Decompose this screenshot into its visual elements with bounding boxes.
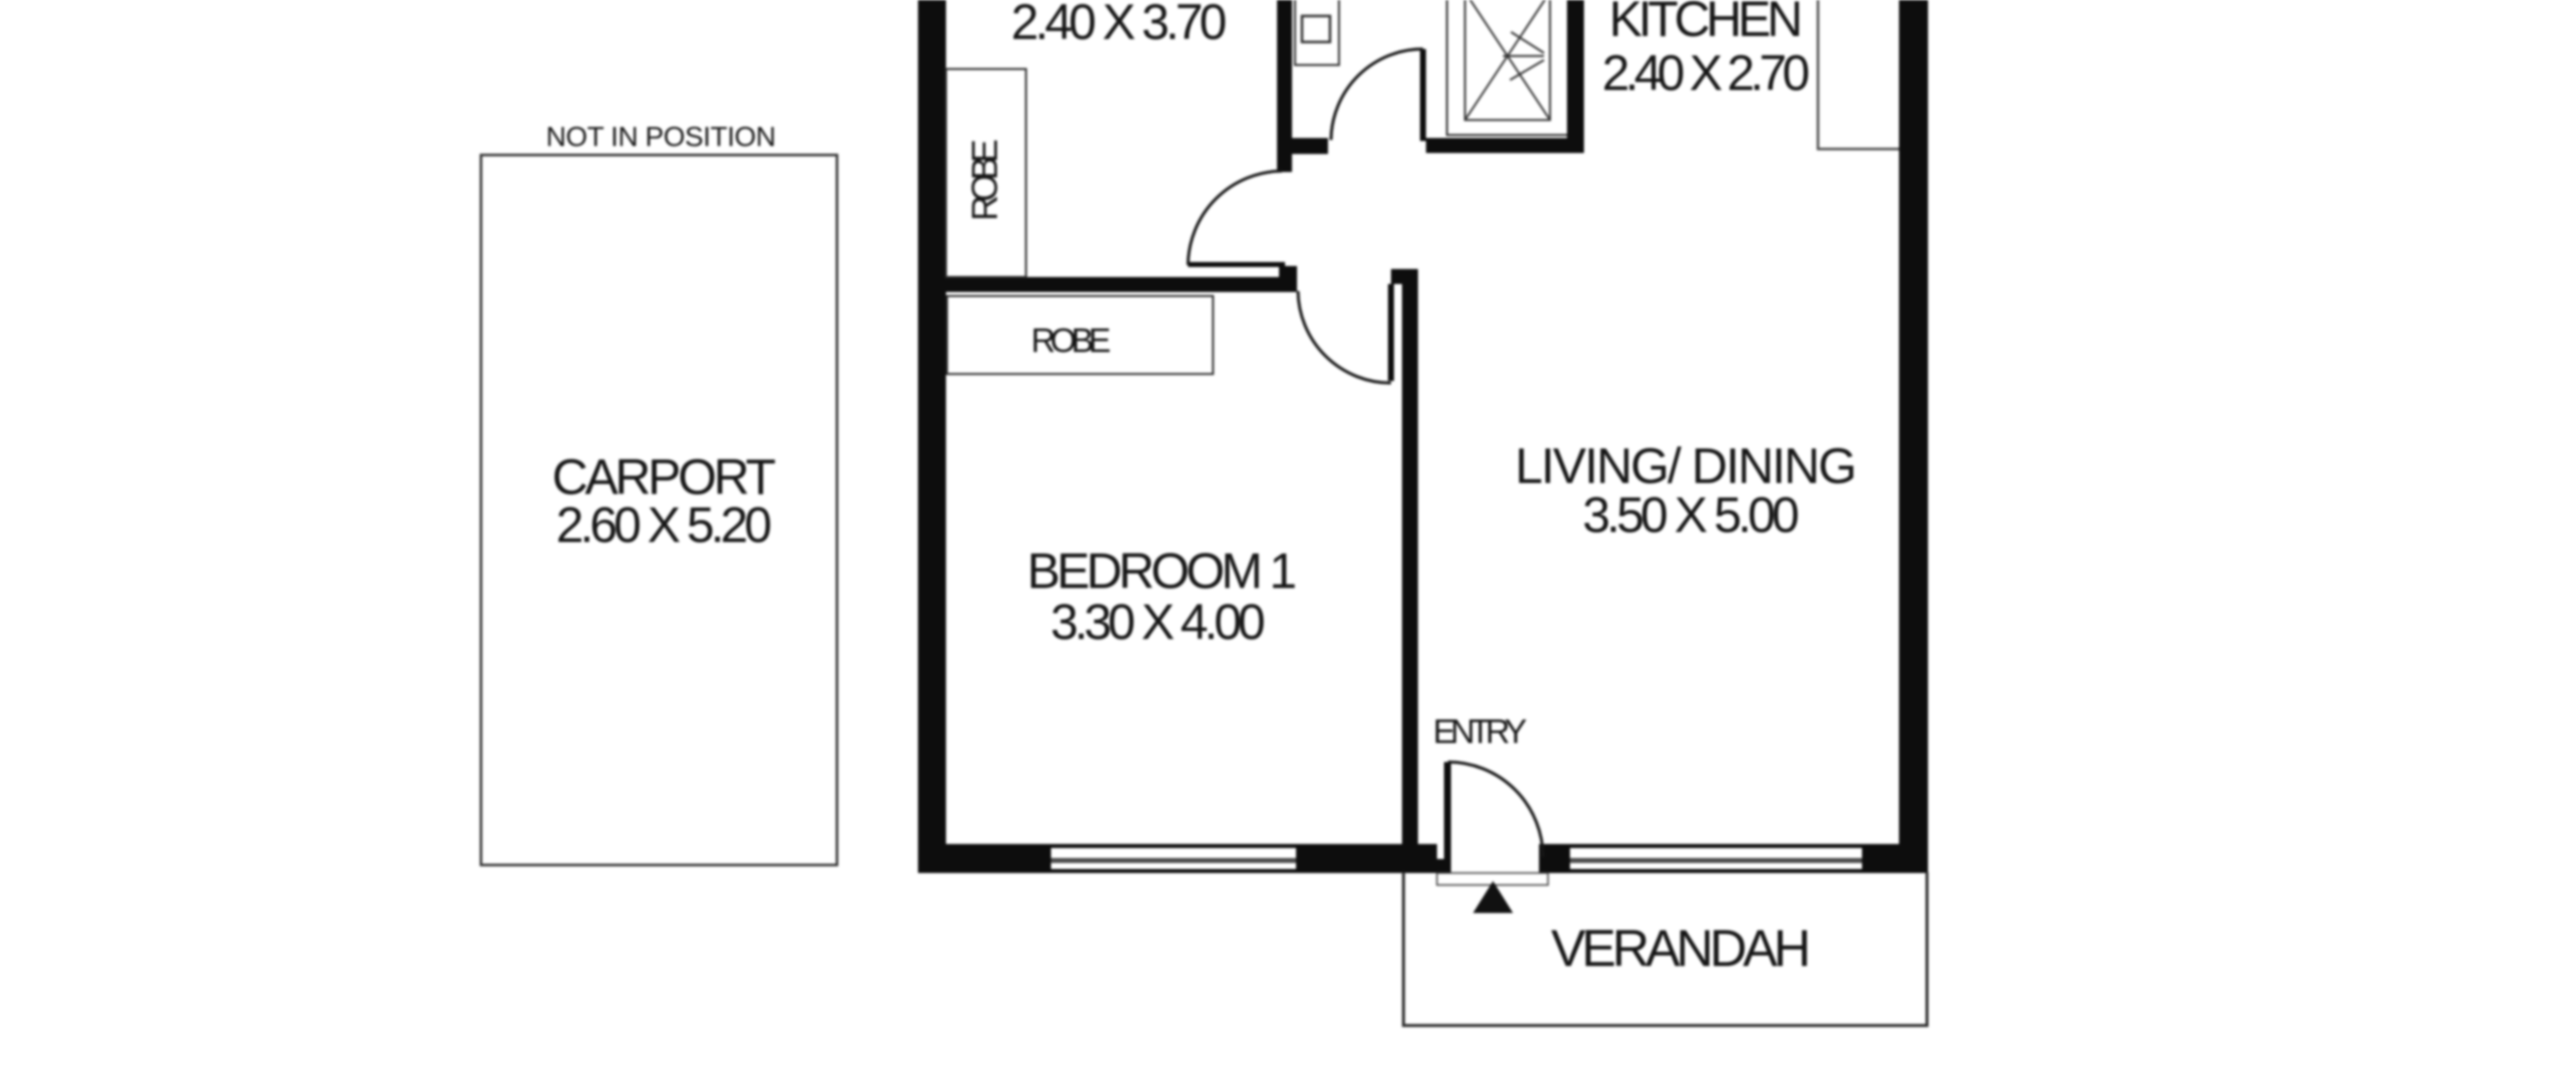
- svg-text:LIVING/ DINING: LIVING/ DINING: [1515, 438, 1857, 494]
- svg-text:2.40 X 2.70: 2.40 X 2.70: [1602, 45, 1810, 101]
- svg-text:3.50 X 5.00: 3.50 X 5.00: [1583, 487, 1800, 543]
- svg-text:2.40 X 3.70: 2.40 X 3.70: [1011, 0, 1227, 50]
- svg-text:NOT IN POSITION: NOT IN POSITION: [546, 121, 776, 152]
- svg-text:KITCHEN: KITCHEN: [1609, 0, 1803, 47]
- svg-text:2.60 X 5.20: 2.60 X 5.20: [556, 497, 772, 553]
- svg-text:ROBE: ROBE: [1031, 322, 1111, 360]
- svg-text:ENTRY: ENTRY: [1433, 713, 1527, 751]
- svg-text:3.30 X 4.00: 3.30 X 4.00: [1051, 594, 1266, 650]
- svg-text:ROBE: ROBE: [964, 139, 1005, 221]
- svg-text:BEDROOM 1: BEDROOM 1: [1027, 543, 1297, 599]
- svg-text:VERANDAH: VERANDAH: [1551, 920, 1811, 978]
